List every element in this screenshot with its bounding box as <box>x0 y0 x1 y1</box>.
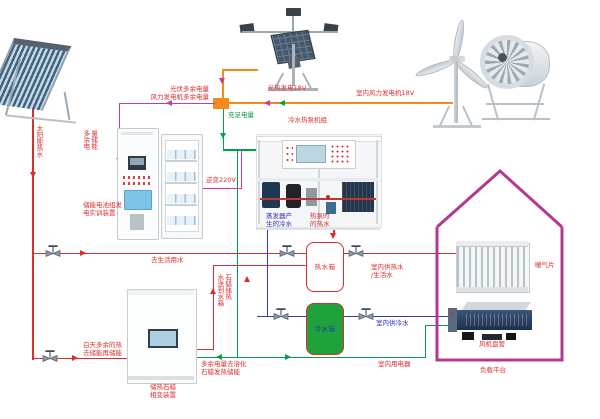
label-paraffin-device: 储热石蜡 相变装置 <box>140 383 186 399</box>
cabinet-indicator-row <box>123 176 151 179</box>
label-indoor-hot-line1: 室内供热水 <box>371 263 404 271</box>
wire-sufficient-down <box>223 108 225 150</box>
label-inverter-220v: 逆变220V <box>206 176 236 184</box>
battery-row <box>167 150 196 159</box>
paraffin-bottom-strip <box>128 376 194 380</box>
flow-arrow-day-surplus-icon <box>72 355 78 361</box>
battery-row <box>167 172 196 181</box>
label-evaporator-line2: 生的冷水 <box>266 220 292 228</box>
label-solar-hot-water: 太阳能热水 <box>35 125 42 158</box>
collector-leg <box>64 92 71 120</box>
label-paraffin-device-line1: 储热石蜡 <box>140 383 186 391</box>
label-surplus-melt-line1: 多余电量去溶化 <box>201 360 247 368</box>
label-surplus-storage-col1: 多余电 <box>82 130 89 150</box>
heatpump-pipe-red <box>260 198 376 200</box>
wire-house-up <box>425 325 427 358</box>
cabinet-blue-panel <box>124 190 152 210</box>
flow-arrow-bus-magenta-icon <box>264 100 270 106</box>
fancoil-red-dot <box>450 312 453 315</box>
heatpump-bottom-bar <box>256 228 380 230</box>
heatpump-post <box>258 140 260 224</box>
heatpump-exchanger <box>342 182 374 212</box>
diagram-canvas: 热水箱 冷水箱 太阳能热水 去生活用水 白天多余的热 去储能再储能 光热发电18… <box>0 0 600 419</box>
label-load-platform: 负载平台 <box>480 366 506 374</box>
wire-inverter-up <box>241 150 243 189</box>
cabinet-display-screen <box>130 158 144 165</box>
pipe-evaporator-down <box>267 230 269 317</box>
label-surplus-melt-line2: 石蜡发热储能 <box>201 368 247 376</box>
heatpump-shelf <box>258 178 378 181</box>
label-surplus-storage-col2: 量储能 <box>90 130 97 150</box>
pipe-paraffin-riser <box>213 265 215 350</box>
bus-junction-box <box>213 98 229 109</box>
paraffin-top-strip <box>128 290 194 295</box>
cabinet-indicator-row <box>123 182 151 185</box>
label-paraffin-riser-col1: 水送到水箱 <box>216 274 223 307</box>
heatpump-pump <box>306 188 317 206</box>
wind-tunnel-fan-image <box>470 35 555 125</box>
label-sufficient-power: 充足电量 <box>228 111 254 119</box>
label-heat-pump-title: 冷水热泵机组 <box>288 116 327 124</box>
label-pv-surplus: 光伏多余电量 <box>145 85 209 93</box>
flow-arrow-domestic-icon <box>80 250 86 256</box>
label-paraffin-riser-col2: 石蜡储热 <box>224 274 231 307</box>
battery-shelf <box>165 160 197 162</box>
battery-cabinet-image <box>117 126 202 241</box>
flow-arrow-melt-icon <box>216 354 222 360</box>
battery-shelf <box>165 204 197 206</box>
label-evaporator-line1: 蒸发器产 <box>266 212 292 220</box>
fan-hub <box>498 53 507 62</box>
flow-arrow-riser-icon <box>210 288 216 294</box>
label-indoor-hot-line2: /生活水 <box>371 271 404 279</box>
label-indoor-cold-supply: 室内供冷水 <box>376 319 409 327</box>
label-heatpump-hot: 热泵时 的热水 <box>310 212 330 228</box>
hot-tank-label: 热水箱 <box>315 263 336 271</box>
gate-valve-icon <box>273 306 289 322</box>
label-battery-device-line2: 电实训装置 <box>83 209 122 217</box>
gate-valve-icon <box>42 348 58 364</box>
collector-foot <box>6 114 76 123</box>
label-indoor-appliances: 室内用电器 <box>378 360 411 368</box>
label-indoor-hot-supply: 室内供热水 /生活水 <box>371 263 404 279</box>
label-radiator: 暖气片 <box>535 261 555 269</box>
fan-leg <box>533 83 545 120</box>
label-day-surplus: 白天多余的热 去储能再储能 <box>83 341 122 357</box>
turbine-pole <box>454 61 458 123</box>
paraffin-device-image <box>127 289 197 384</box>
flow-arrow-sufficient-icon <box>220 133 226 139</box>
label-battery-device-line1: 储能电池组发 <box>83 201 122 209</box>
radiator-top-rail <box>456 241 528 247</box>
heatpump-buttons <box>330 144 350 164</box>
cold-water-tank: 冷水箱 <box>306 303 344 355</box>
label-day-surplus-line1: 白天多余的热 <box>83 341 122 349</box>
tracker-pole <box>292 44 295 86</box>
label-surplus-storage: 多余电 量储能 <box>82 130 97 150</box>
label-paraffin-device-line2: 相变装置 <box>140 391 186 399</box>
fan-ring <box>480 35 534 89</box>
wire-inverter-horiz <box>200 188 242 190</box>
label-heatpump-hot-line2: 的热水 <box>310 220 330 228</box>
label-evaporator-cold: 蒸发器产 生的冷水 <box>266 212 292 228</box>
label-wind-generator: 室内风力发电机18V <box>356 89 414 97</box>
label-paraffin-riser: 水送到水箱 石蜡储热 <box>216 274 231 307</box>
pv-tracker-image <box>230 4 365 96</box>
hot-water-tank: 热水箱 <box>306 242 344 292</box>
fancoil-motor <box>462 332 474 340</box>
label-fan-coil: 风机盘管 <box>479 340 505 348</box>
wire-main-down <box>237 149 239 358</box>
cabinet-lower-box <box>130 214 144 230</box>
cold-tank-label: 冷水箱 <box>315 325 336 333</box>
label-bus-surplus: 光伏多余电量 风力发电机多余电量 <box>145 85 209 101</box>
solar-collector-image <box>4 26 112 126</box>
fan-frame-bar <box>486 103 544 105</box>
heatpump-buttons <box>285 145 293 161</box>
battery-shelf <box>165 182 197 184</box>
battery-row <box>167 216 196 225</box>
fan-leg <box>487 83 499 120</box>
cabinet-vent <box>121 132 153 135</box>
turbine-base <box>433 125 481 128</box>
fancoil-grille <box>466 314 528 326</box>
radiator-fins <box>456 243 530 293</box>
gate-valve-icon <box>358 306 374 322</box>
flow-arrow-appliance-icon <box>285 354 291 360</box>
heatpump-tank <box>262 182 280 208</box>
paraffin-display <box>148 329 178 348</box>
pipe-solar-down <box>32 106 34 360</box>
pipe-paraffin-outlet <box>197 349 214 351</box>
tracker-lamp <box>286 8 301 16</box>
gate-valve-icon <box>348 243 364 259</box>
flow-arrow-mid-icon <box>244 276 250 282</box>
fan-frame-bar <box>482 118 550 120</box>
label-day-surplus-line2: 去储能再储能 <box>83 349 122 357</box>
heatpump-post <box>376 140 378 224</box>
label-surplus-melt: 多余电量去溶化 石蜡发热储能 <box>201 360 247 376</box>
radiator-bottom-rail <box>456 287 528 292</box>
heatpump-screen <box>296 145 326 163</box>
label-to-domestic-water: 去生活用水 <box>151 256 184 264</box>
flow-arrow-pv-down-icon <box>219 78 225 84</box>
battery-row <box>167 194 196 203</box>
radiator-image <box>456 241 532 295</box>
heatpump-valve-dot <box>326 195 330 199</box>
fancoil-motor <box>506 333 516 340</box>
label-battery-device: 储能电池组发 电实训装置 <box>83 201 122 217</box>
flow-arrow-heatpump-hot-icon <box>330 233 336 239</box>
flow-arrow-bus-green-icon <box>279 100 285 106</box>
label-wind-surplus: 风力发电机多余电量 <box>145 93 209 101</box>
label-heatpump-hot-line1: 热泵时 <box>310 212 330 220</box>
pipe-riser-to-tank <box>213 265 307 267</box>
label-pv-generation: 光热发电18V <box>255 84 319 92</box>
wire-bottom <box>197 357 426 359</box>
flow-arrow-solar-down-icon <box>30 172 36 178</box>
heatpump-compressor <box>286 184 301 208</box>
tracker-stem <box>292 16 294 32</box>
gate-valve-icon <box>45 243 61 259</box>
gate-valve-icon <box>279 243 295 259</box>
